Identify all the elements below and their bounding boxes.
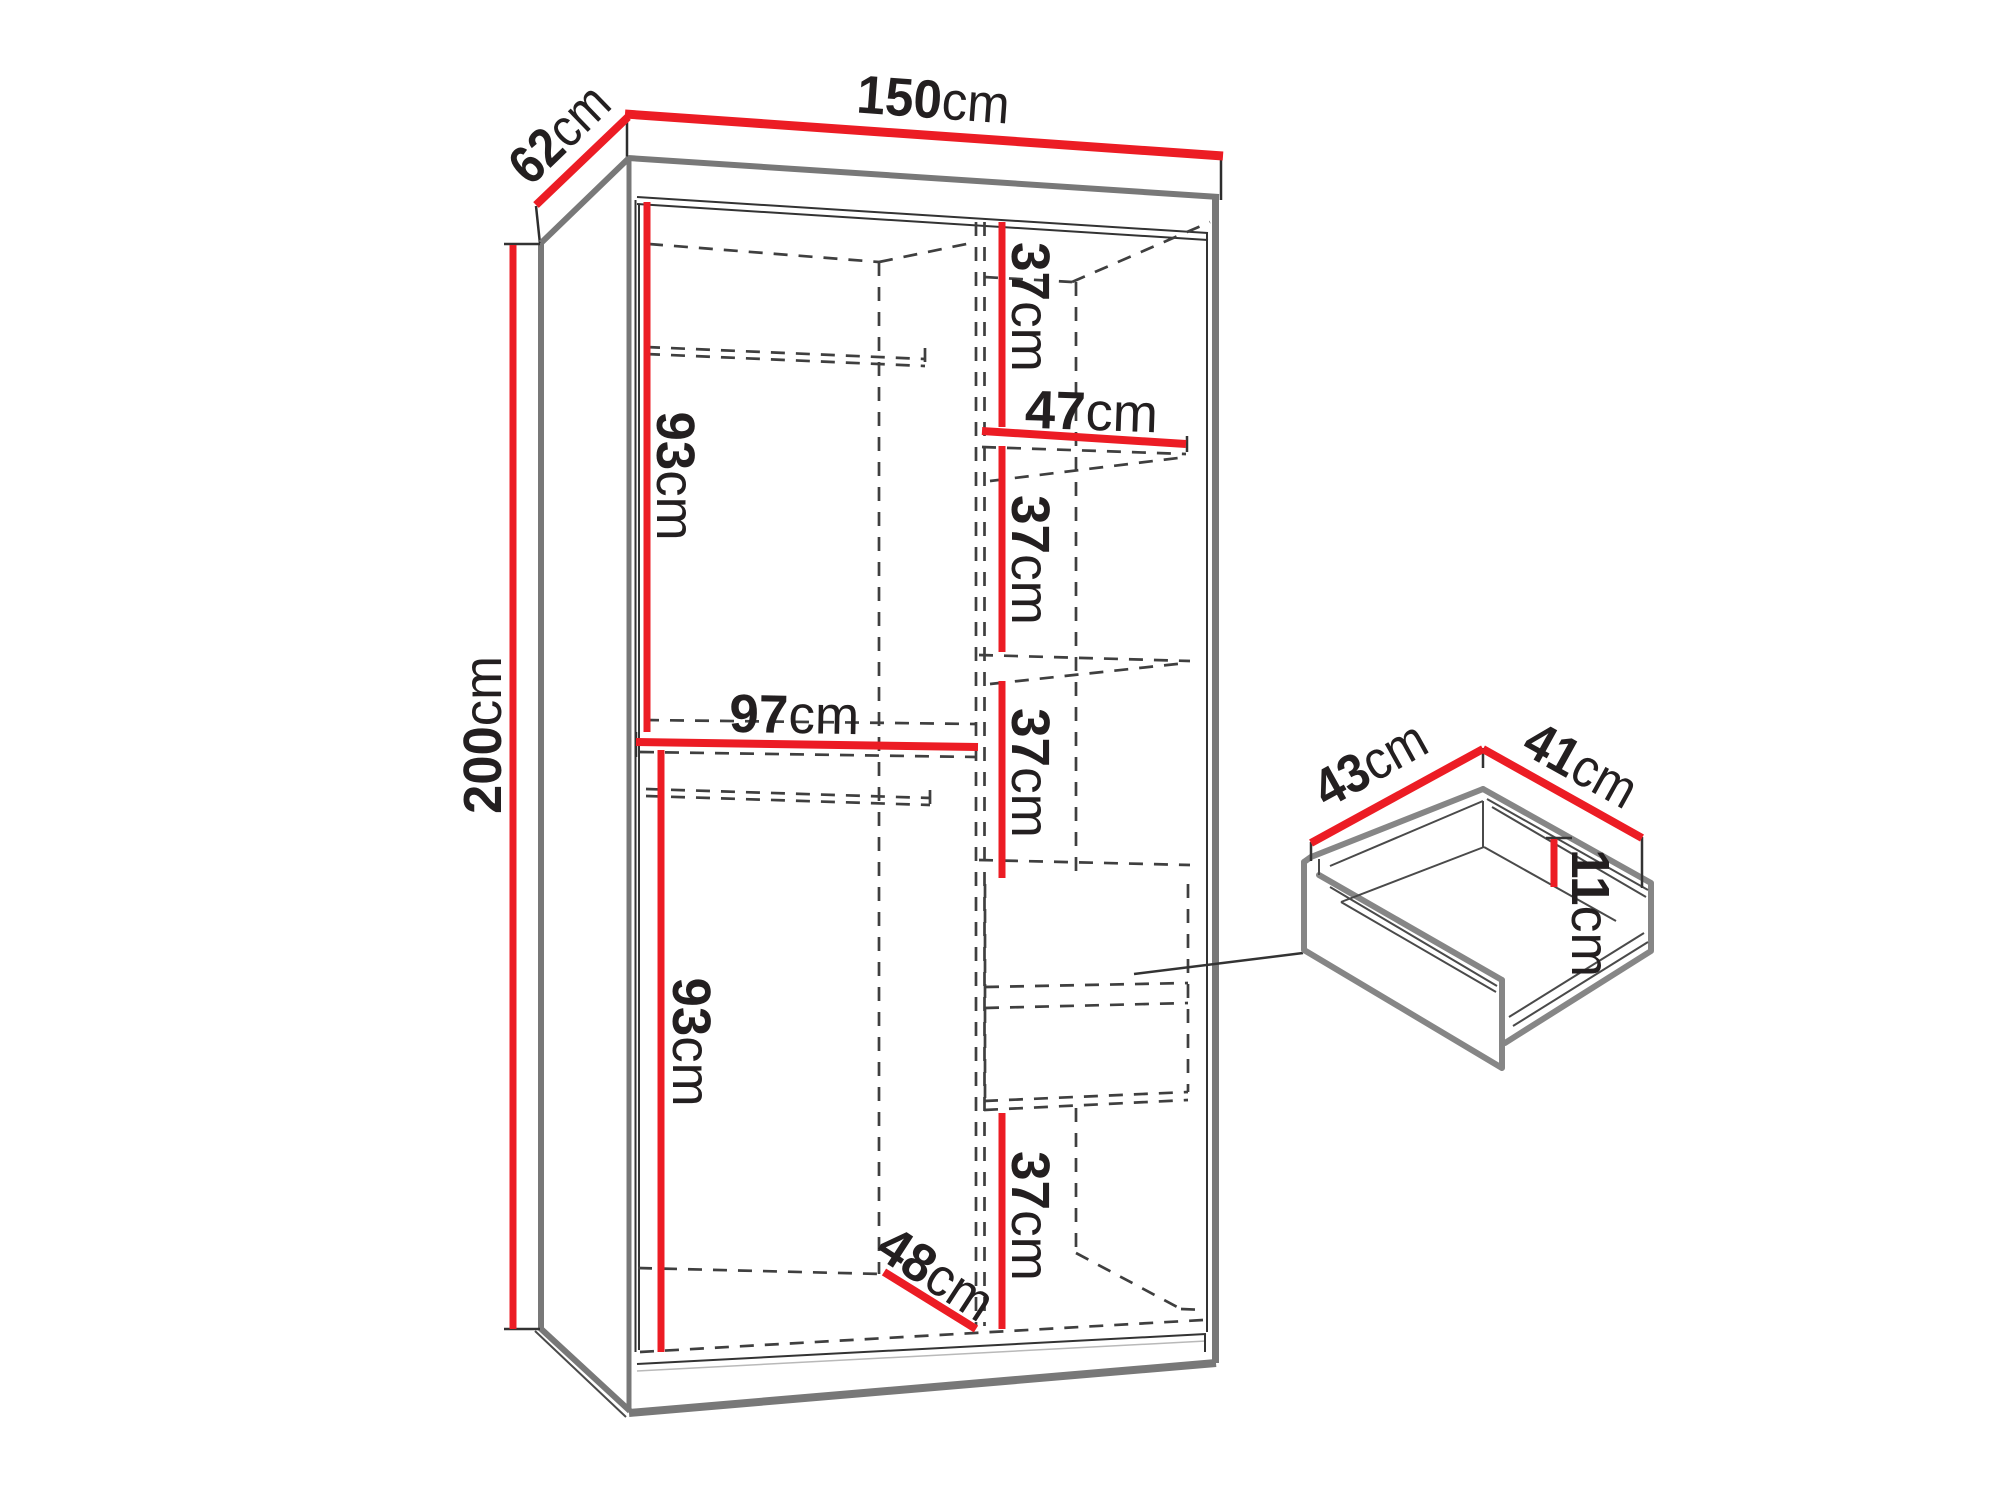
- svg-text:cm: cm: [453, 656, 513, 726]
- svg-text:cm: cm: [788, 685, 860, 746]
- svg-text:47: 47: [1024, 380, 1087, 442]
- svg-text:37: 37: [1000, 708, 1060, 767]
- svg-text:cm: cm: [1000, 554, 1060, 625]
- svg-text:93: 93: [661, 978, 721, 1037]
- svg-text:cm: cm: [1000, 301, 1060, 372]
- svg-text:150: 150: [855, 65, 944, 131]
- svg-text:37: 37: [1000, 242, 1060, 301]
- svg-text:93: 93: [645, 412, 705, 471]
- svg-text:cm: cm: [1000, 1210, 1060, 1281]
- svg-text:cm: cm: [940, 71, 1012, 136]
- svg-text:37: 37: [1000, 1151, 1060, 1210]
- svg-text:cm: cm: [1000, 767, 1060, 838]
- svg-text:cm: cm: [645, 470, 705, 540]
- svg-text:11: 11: [1560, 849, 1620, 906]
- svg-text:200: 200: [453, 726, 513, 814]
- svg-text:cm: cm: [661, 1036, 721, 1106]
- svg-text:97: 97: [729, 684, 789, 745]
- svg-text:37: 37: [1000, 495, 1060, 554]
- svg-text:cm: cm: [1560, 906, 1620, 977]
- svg-text:cm: cm: [1085, 382, 1160, 444]
